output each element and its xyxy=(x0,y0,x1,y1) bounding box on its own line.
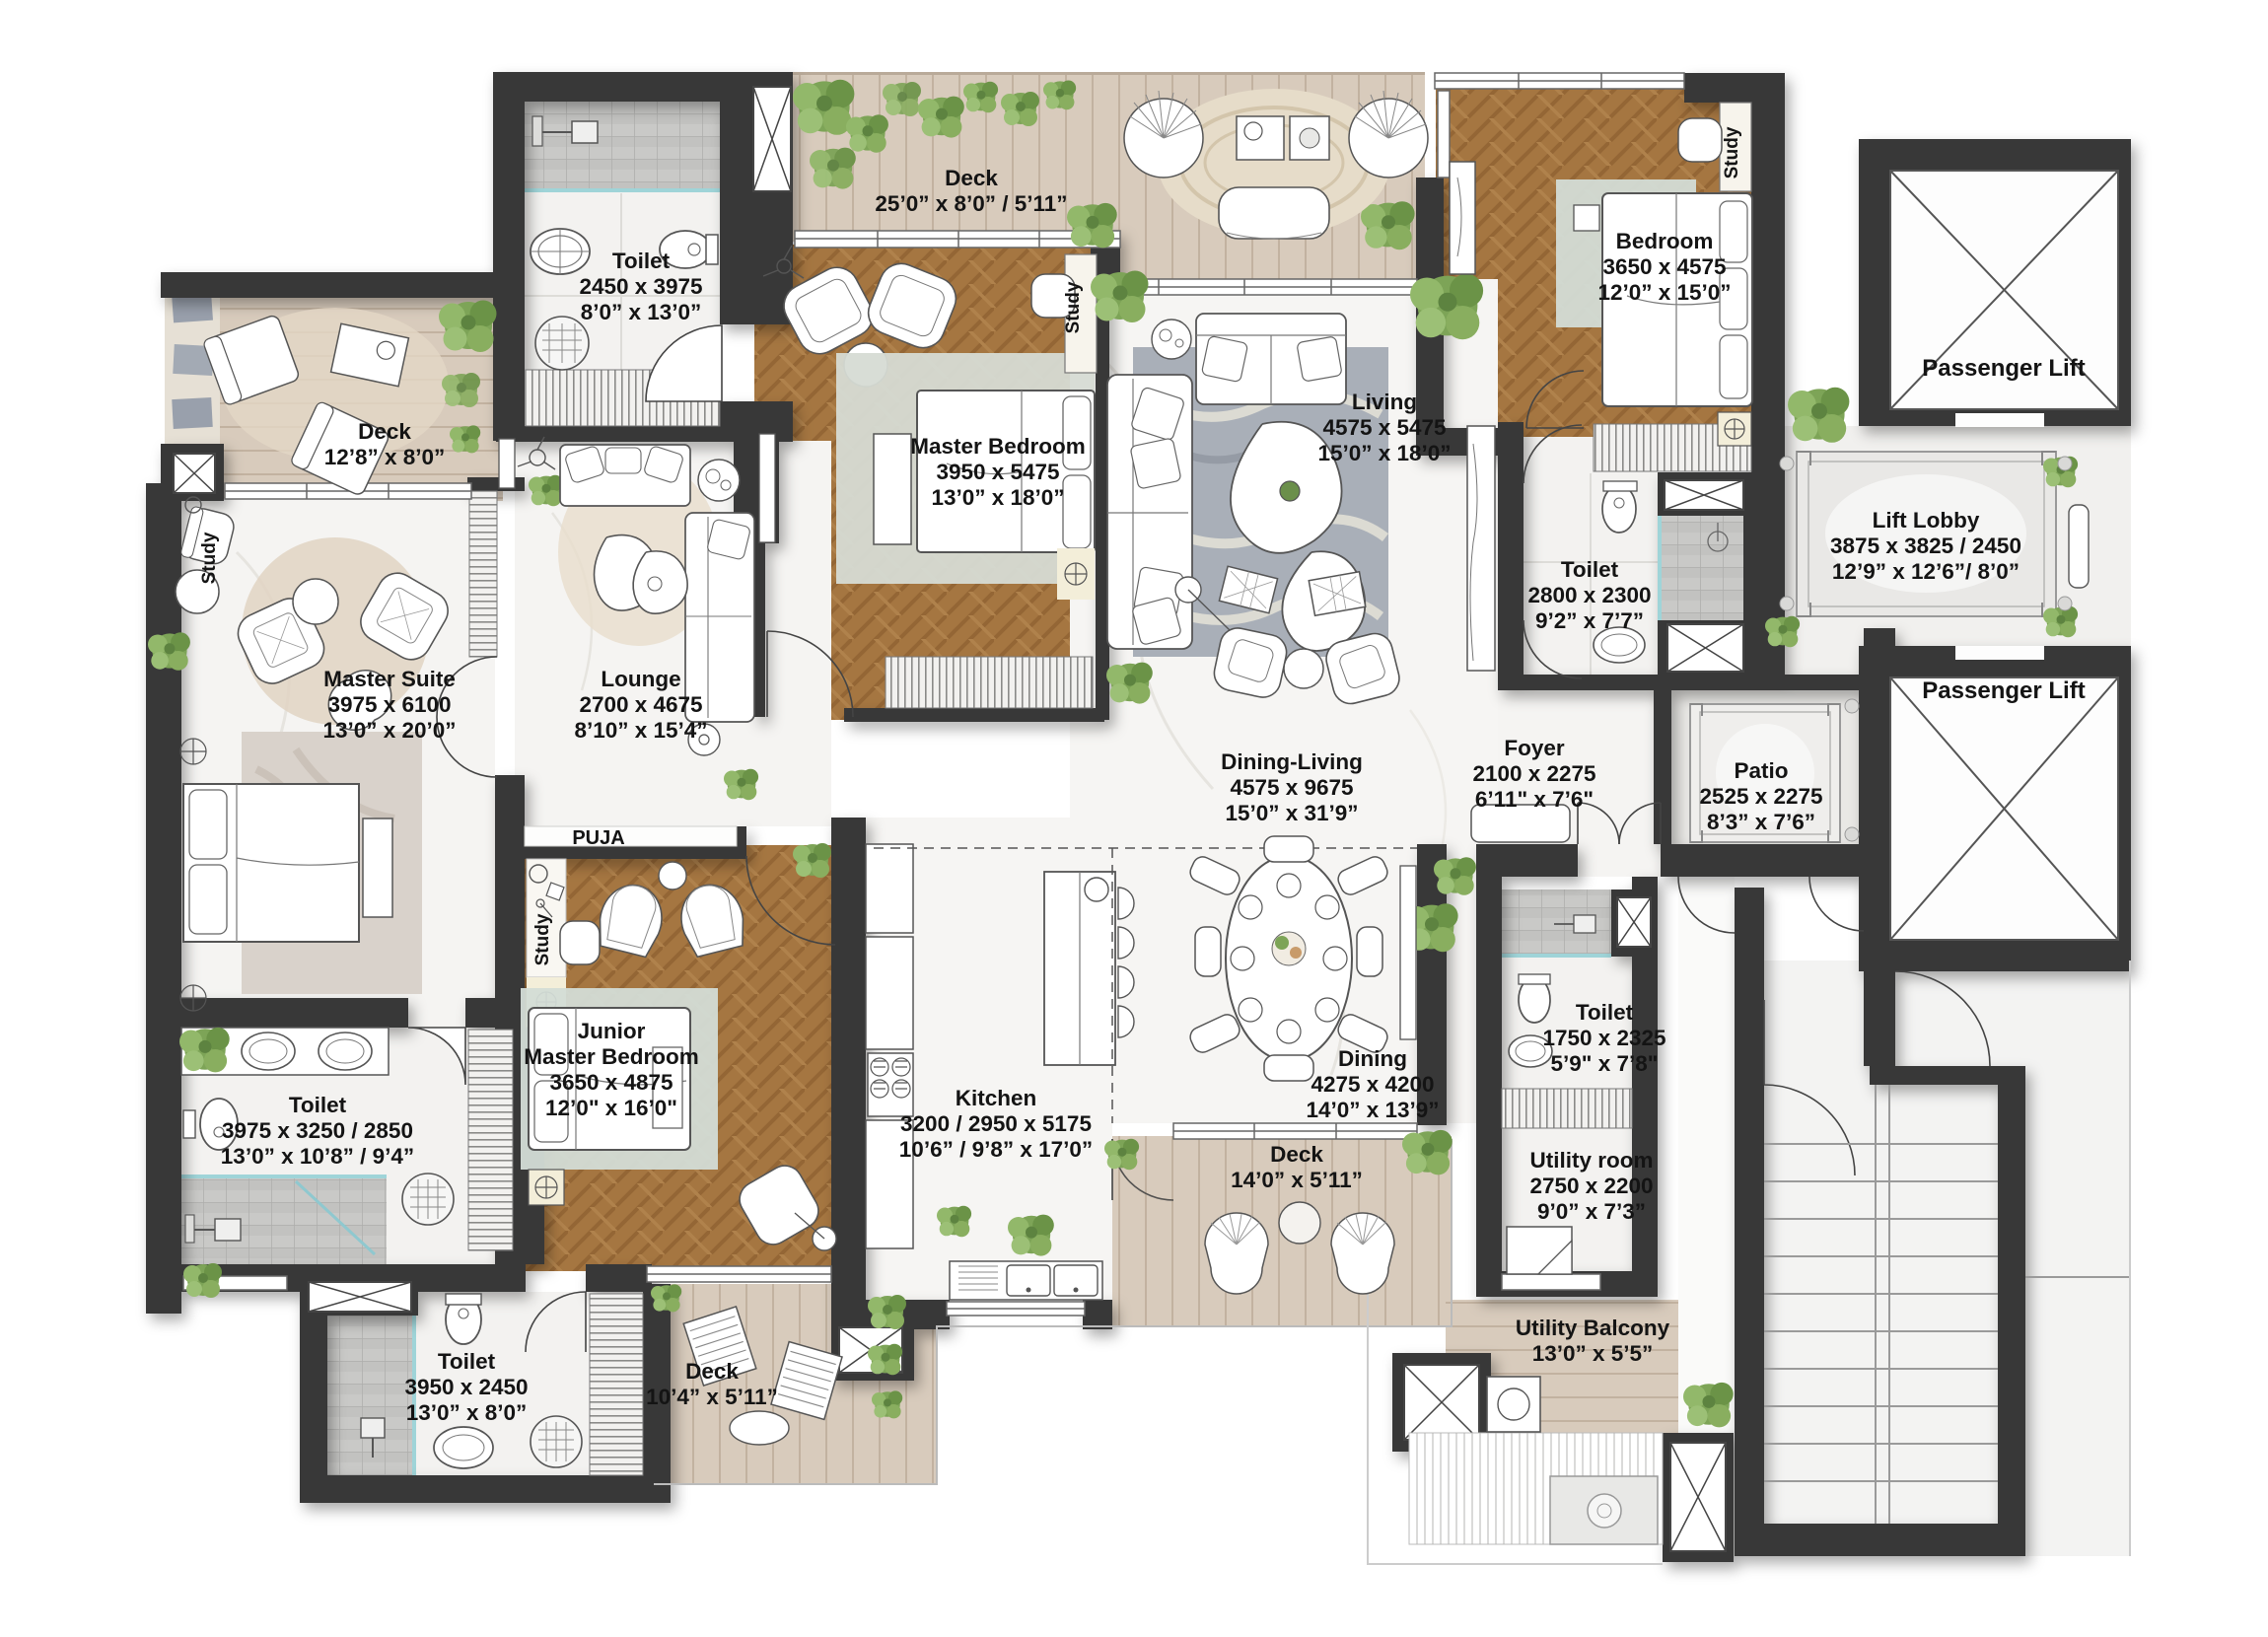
svg-text:3875 x 3825 / 2450: 3875 x 3825 / 2450 xyxy=(1830,534,2021,558)
svg-text:Study: Study xyxy=(199,532,220,584)
svg-text:13’0” x 18’0”: 13’0” x 18’0” xyxy=(931,485,1064,510)
svg-text:3975 x 6100: 3975 x 6100 xyxy=(327,692,451,717)
svg-text:15’0” x 31’9”: 15’0” x 31’9” xyxy=(1225,801,1358,825)
svg-text:3650 x 4575: 3650 x 4575 xyxy=(1602,254,1726,279)
svg-text:Toilet: Toilet xyxy=(289,1093,347,1117)
svg-text:2450 x 3975: 2450 x 3975 xyxy=(579,274,702,299)
svg-text:9’2” x 7’7”: 9’2” x 7’7” xyxy=(1535,608,1644,633)
svg-text:Dining-Living: Dining-Living xyxy=(1221,749,1363,774)
svg-text:Utility room: Utility room xyxy=(1529,1148,1653,1173)
svg-text:Study: Study xyxy=(1722,126,1742,178)
svg-text:6’11" x 7’6": 6’11" x 7’6" xyxy=(1475,787,1594,812)
svg-text:13’0” x 20’0”: 13’0” x 20’0” xyxy=(322,718,456,743)
svg-text:Toilet: Toilet xyxy=(1576,1000,1634,1025)
svg-text:3975 x 3250 / 2850: 3975 x 3250 / 2850 xyxy=(222,1118,413,1143)
svg-text:Kitchen: Kitchen xyxy=(956,1086,1037,1110)
svg-text:Foyer: Foyer xyxy=(1504,736,1565,760)
svg-text:4575 x 5475: 4575 x 5475 xyxy=(1322,415,1446,440)
svg-text:3950 x 2450: 3950 x 2450 xyxy=(404,1375,528,1399)
svg-text:Patio: Patio xyxy=(1734,758,1788,783)
svg-text:Study: Study xyxy=(1063,281,1084,333)
svg-text:2800 x 2300: 2800 x 2300 xyxy=(1527,583,1651,607)
svg-text:10’4” x 5’11”: 10’4” x 5’11” xyxy=(646,1385,778,1409)
svg-text:13’0” x 8’0”: 13’0” x 8’0” xyxy=(406,1400,528,1425)
svg-text:25’0” x 8’0” / 5’11”: 25’0” x 8’0” / 5’11” xyxy=(875,191,1067,216)
svg-text:Deck: Deck xyxy=(945,166,998,190)
svg-text:Deck: Deck xyxy=(1270,1142,1323,1167)
svg-text:3950 x 5475: 3950 x 5475 xyxy=(936,460,1059,484)
svg-text:Deck: Deck xyxy=(685,1359,739,1384)
svg-text:12’0” x 15’0”: 12’0” x 15’0” xyxy=(1597,280,1731,305)
svg-text:Junior: Junior xyxy=(578,1019,646,1043)
svg-text:Utility Balcony: Utility Balcony xyxy=(1516,1316,1670,1340)
svg-text:Master Bedroom: Master Bedroom xyxy=(524,1044,699,1069)
svg-text:4275 x 4200: 4275 x 4200 xyxy=(1311,1072,1434,1097)
svg-text:3650 x 4875: 3650 x 4875 xyxy=(549,1070,673,1095)
svg-text:14’0” x 13’9”: 14’0” x 13’9” xyxy=(1306,1098,1439,1122)
svg-text:12’8” x 8’0”: 12’8” x 8’0” xyxy=(324,445,446,469)
svg-text:9’0” x 7’3”: 9’0” x 7’3” xyxy=(1537,1199,1646,1224)
svg-text:Study: Study xyxy=(532,913,553,965)
svg-text:2525 x 2275: 2525 x 2275 xyxy=(1699,784,1822,809)
svg-text:Toilet: Toilet xyxy=(612,249,671,273)
svg-text:10’6” / 9’8” x 17’0”: 10’6” / 9’8” x 17’0” xyxy=(899,1137,1093,1162)
svg-text:5’9" x 7’8": 5’9" x 7’8" xyxy=(1551,1051,1659,1076)
svg-text:2700 x 4675: 2700 x 4675 xyxy=(579,692,702,717)
svg-text:Master Bedroom: Master Bedroom xyxy=(910,434,1086,459)
svg-text:13’0” x 5’5”: 13’0” x 5’5” xyxy=(1532,1341,1654,1366)
svg-text:2750 x 2200: 2750 x 2200 xyxy=(1529,1174,1653,1198)
svg-text:Passenger Lift: Passenger Lift xyxy=(1922,677,2085,704)
svg-text:8’10” x 15’4”: 8’10” x 15’4” xyxy=(574,718,707,743)
svg-text:3200 / 2950 x 5175: 3200 / 2950 x 5175 xyxy=(900,1111,1092,1136)
svg-text:13’0” x 10’8” / 9’4”: 13’0” x 10’8” / 9’4” xyxy=(221,1144,414,1169)
svg-text:1750 x 2325: 1750 x 2325 xyxy=(1542,1026,1666,1050)
svg-text:8’0” x 13’0”: 8’0” x 13’0” xyxy=(581,300,702,324)
svg-text:15’0” x 18’0”: 15’0” x 18’0” xyxy=(1317,441,1451,465)
svg-text:Passenger Lift: Passenger Lift xyxy=(1922,355,2085,382)
svg-text:8’3” x 7’6”: 8’3” x 7’6” xyxy=(1707,810,1815,834)
svg-text:Living: Living xyxy=(1352,390,1417,414)
svg-text:Toilet: Toilet xyxy=(1561,557,1619,582)
svg-text:Deck: Deck xyxy=(358,419,411,444)
svg-text:Lounge: Lounge xyxy=(601,667,680,691)
svg-text:14’0” x 5’11”: 14’0” x 5’11” xyxy=(1231,1168,1363,1192)
svg-text:4575 x 9675: 4575 x 9675 xyxy=(1230,775,1353,800)
svg-text:Bedroom: Bedroom xyxy=(1616,229,1714,253)
svg-text:12’9” x 12’6”/ 8’0”: 12’9” x 12’6”/ 8’0” xyxy=(1832,559,2020,584)
svg-text:2100 x 2275: 2100 x 2275 xyxy=(1472,761,1595,786)
svg-text:Lift Lobby: Lift Lobby xyxy=(1873,508,1980,533)
svg-text:Master Suite: Master Suite xyxy=(323,667,456,691)
svg-text:PUJA: PUJA xyxy=(572,827,624,849)
svg-text:Dining: Dining xyxy=(1338,1046,1407,1071)
svg-text:12’0" x 16’0": 12’0" x 16’0" xyxy=(545,1096,677,1120)
svg-text:Toilet: Toilet xyxy=(438,1349,496,1374)
